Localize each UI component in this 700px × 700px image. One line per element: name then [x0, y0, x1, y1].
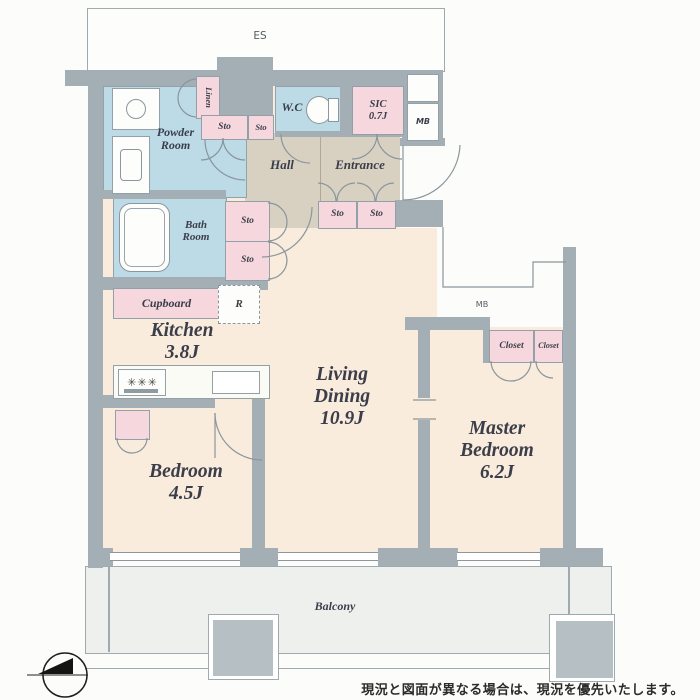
- hall-storage-door-arcs: [201, 138, 245, 160]
- sliding-door-lines: [413, 400, 436, 419]
- floor-plan: ES Linen Sto Sto SIC: [0, 0, 700, 700]
- master-closet-door-arcs: [491, 361, 553, 381]
- disclaimer-text: 現況と図面が異なる場合は、現況を優先いたします。: [361, 679, 684, 698]
- north-compass-icon: [27, 653, 88, 697]
- living-storage-door-arcs: [268, 203, 287, 279]
- entrance-storage-door-arcs: [318, 183, 394, 201]
- hall-door-arc: [262, 207, 312, 257]
- wc-door-arc: [281, 134, 310, 163]
- sic-door-arcs: [352, 134, 402, 159]
- exterior-niche-outline: [443, 227, 566, 287]
- bedroom-door-arc: [215, 413, 262, 460]
- bedroom-closet-door-arcs: [117, 438, 147, 453]
- linen-door-arcs: [178, 79, 196, 117]
- plan-overlay: [0, 0, 700, 700]
- entrance-door-arc: [403, 145, 460, 200]
